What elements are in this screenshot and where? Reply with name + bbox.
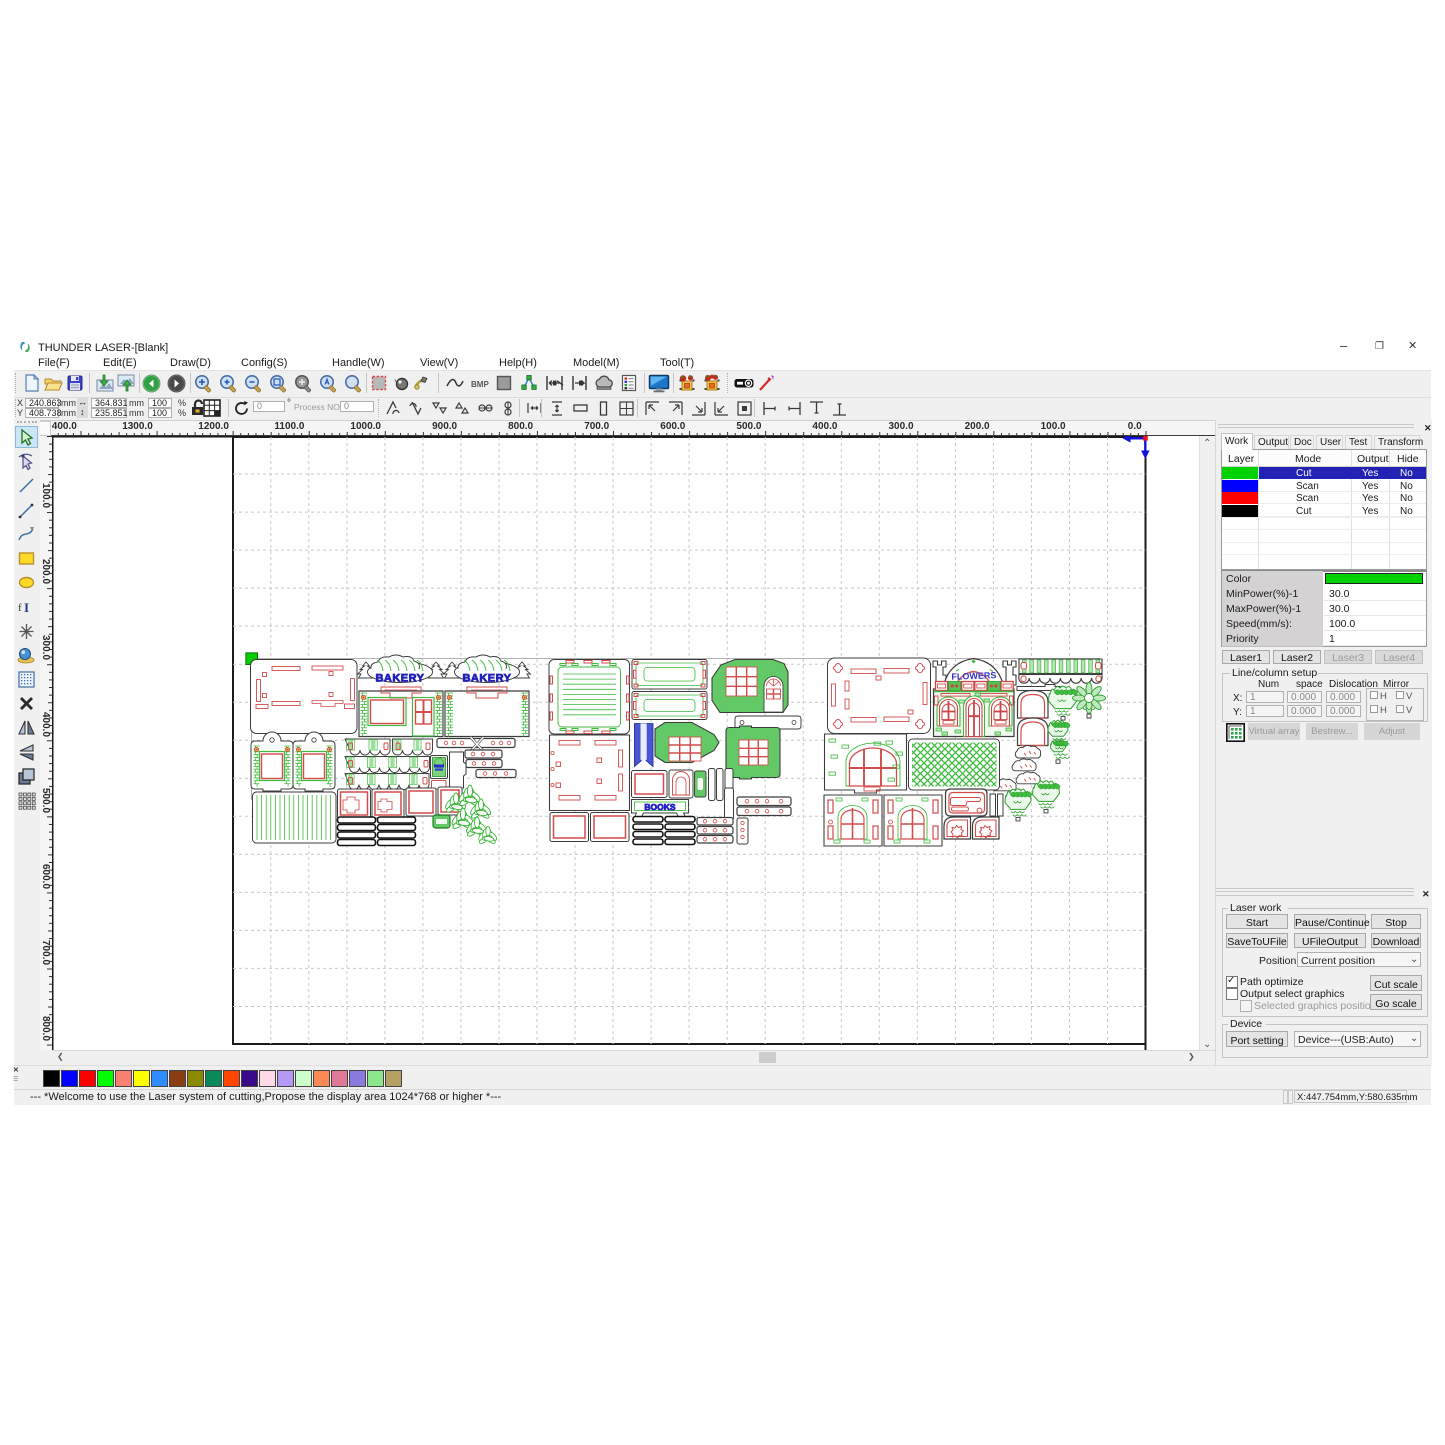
svg-text:I: I [24,600,29,615]
svg-text:FLOWERS: FLOWERS [951,670,996,682]
svg-text:BAKERY: BAKERY [375,673,424,685]
svg-text:BOOKS: BOOKS [644,802,676,812]
svg-text:BAKERY: BAKERY [462,673,511,685]
svg-text:f: f [18,602,22,614]
svg-text:BMP: BMP [471,380,489,389]
